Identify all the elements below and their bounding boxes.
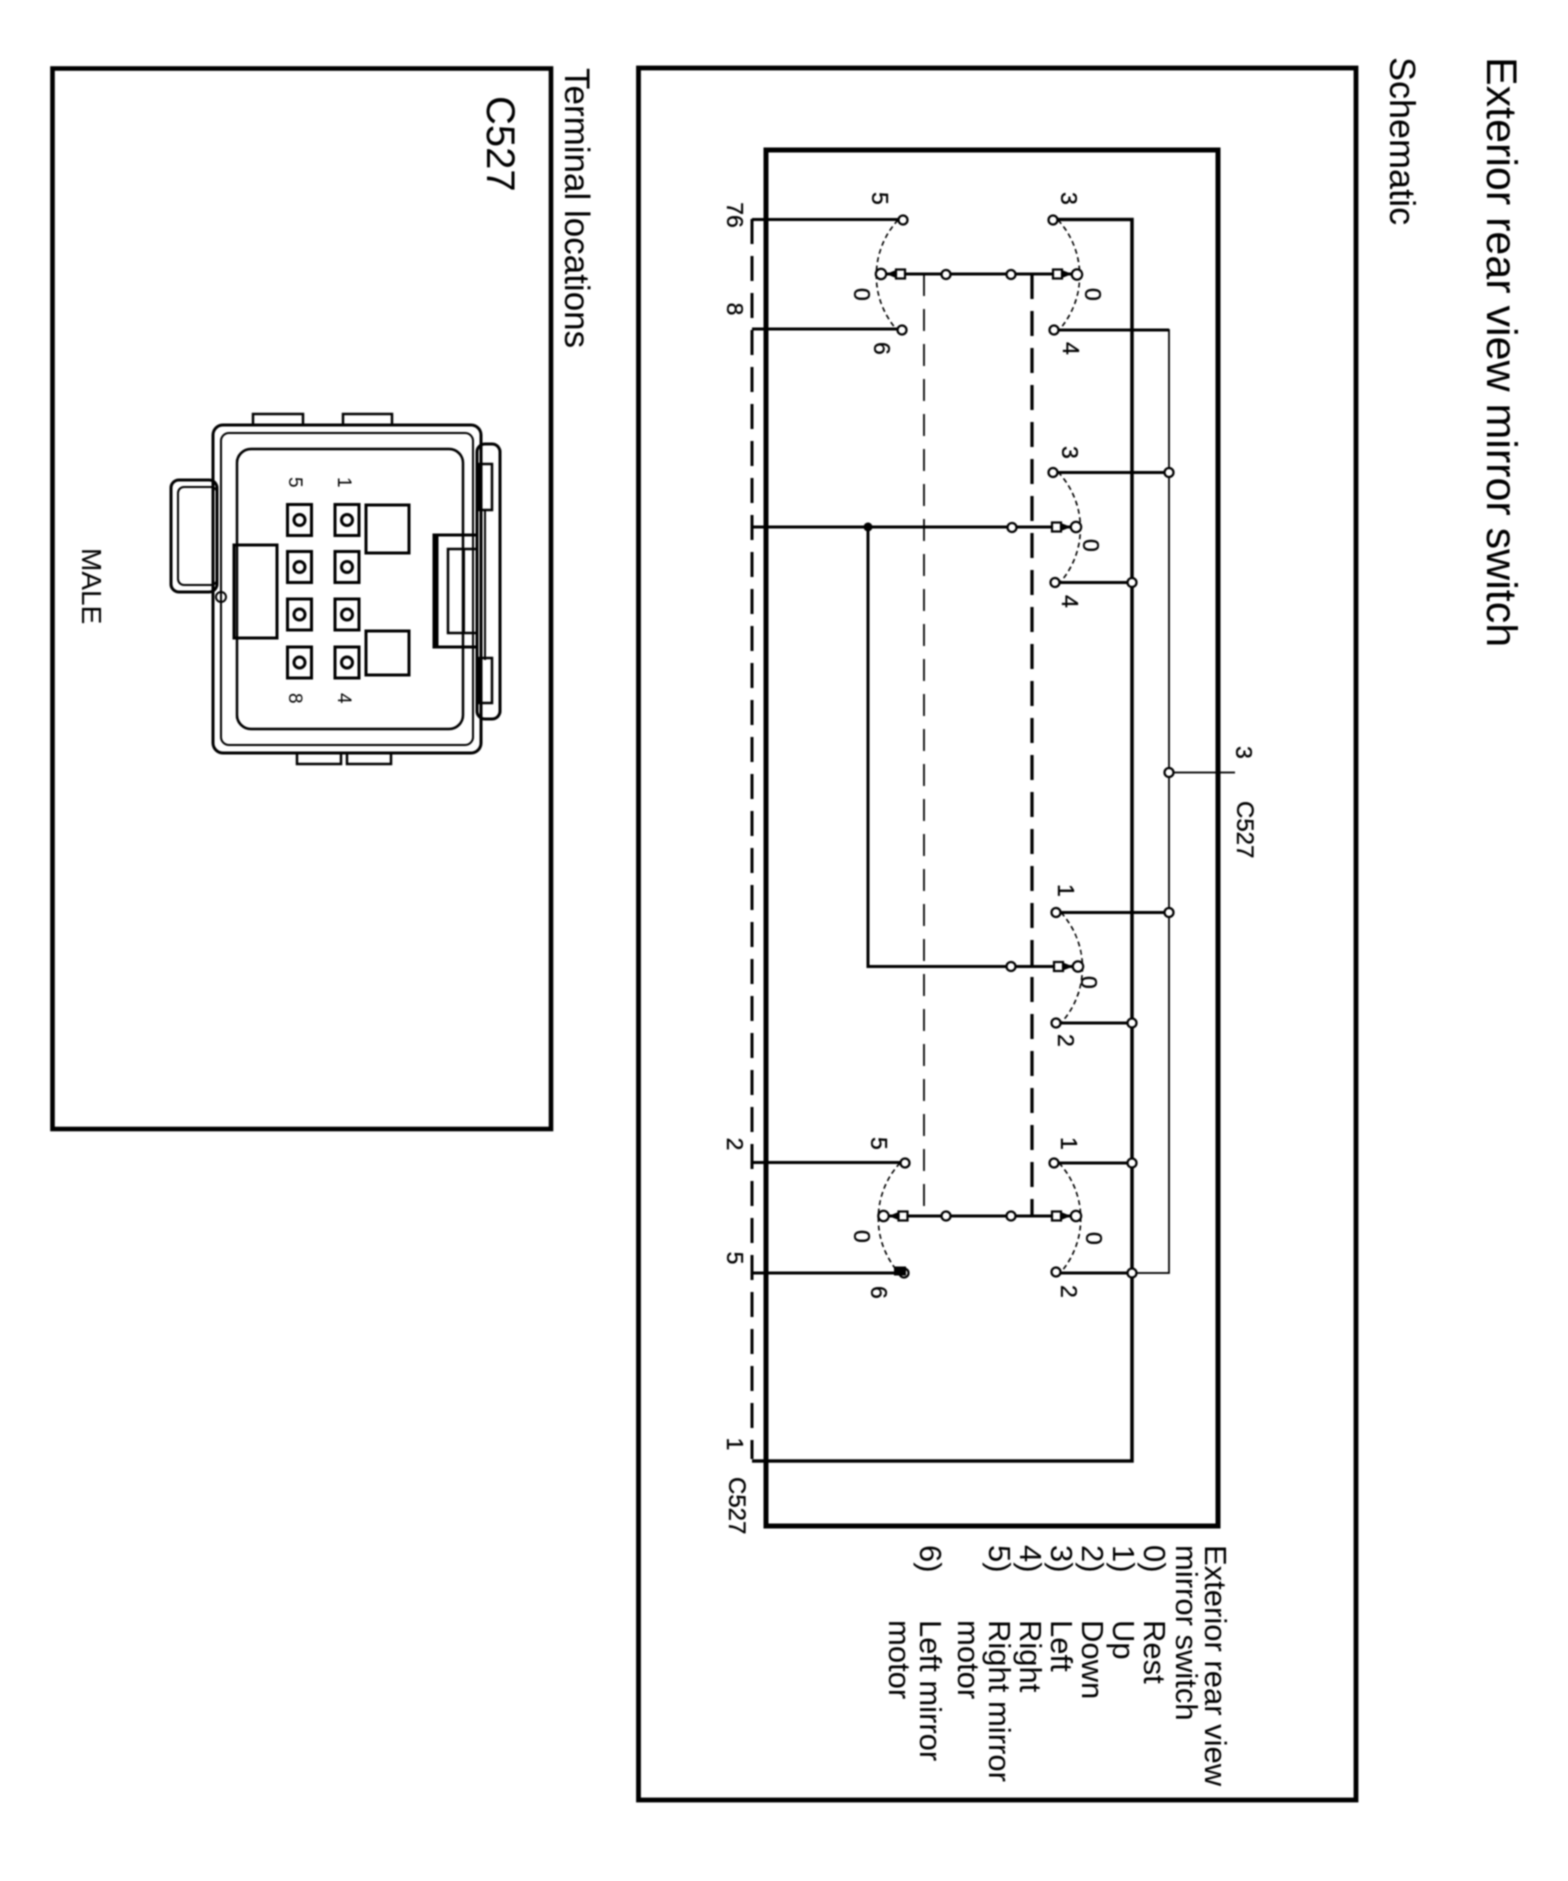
svg-text:mirror switch: mirror switch — [1169, 1545, 1204, 1721]
svg-text:MALE: MALE — [76, 548, 107, 624]
svg-text:4: 4 — [1058, 342, 1084, 355]
svg-text:0: 0 — [849, 1230, 875, 1243]
svg-text:5): 5) — [982, 1545, 1017, 1573]
svg-text:1: 1 — [722, 1438, 748, 1451]
svg-text:motor: motor — [882, 1620, 917, 1699]
svg-text:1: 1 — [1053, 884, 1079, 897]
svg-text:4): 4) — [1013, 1545, 1048, 1573]
svg-text:1): 1) — [1106, 1545, 1141, 1573]
svg-text:2: 2 — [1053, 1034, 1079, 1047]
svg-text:1: 1 — [333, 477, 354, 488]
svg-text:2): 2) — [1075, 1545, 1110, 1573]
svg-text:C527: C527 — [723, 1477, 750, 1534]
svg-text:6: 6 — [869, 342, 895, 355]
svg-text:8: 8 — [722, 303, 748, 316]
svg-text:3: 3 — [1056, 192, 1082, 205]
svg-text:Exterior rear view mirror swit: Exterior rear view mirror switch — [1477, 57, 1525, 647]
svg-text:5: 5 — [866, 1137, 892, 1150]
svg-text:76: 76 — [722, 202, 748, 228]
svg-text:0: 0 — [1081, 1232, 1107, 1245]
svg-text:3): 3) — [1044, 1545, 1079, 1573]
svg-text:4: 4 — [333, 693, 354, 704]
svg-text:0): 0) — [1137, 1545, 1172, 1573]
svg-text:5: 5 — [867, 192, 893, 205]
svg-text:0: 0 — [1080, 288, 1106, 301]
svg-text:0: 0 — [1078, 539, 1104, 552]
svg-text:3: 3 — [1231, 746, 1257, 759]
svg-text:5: 5 — [284, 477, 305, 488]
svg-text:6): 6) — [913, 1545, 948, 1573]
svg-text:Rest: Rest — [1137, 1620, 1172, 1684]
svg-text:Up: Up — [1106, 1620, 1141, 1660]
svg-text:6: 6 — [866, 1286, 892, 1299]
svg-text:5: 5 — [722, 1252, 748, 1265]
svg-text:8: 8 — [284, 693, 305, 704]
svg-text:0: 0 — [849, 288, 875, 301]
svg-text:Left: Left — [1044, 1620, 1079, 1672]
svg-text:0: 0 — [1076, 976, 1102, 989]
svg-text:Down: Down — [1075, 1620, 1110, 1699]
svg-text:Schematic: Schematic — [1382, 57, 1423, 225]
svg-text:Terminal locations: Terminal locations — [557, 68, 596, 348]
svg-text:3: 3 — [1057, 446, 1083, 459]
svg-text:2: 2 — [1056, 1285, 1082, 1298]
svg-text:Right: Right — [1013, 1620, 1048, 1693]
svg-text:4: 4 — [1057, 595, 1083, 608]
svg-text:C527: C527 — [1231, 801, 1258, 858]
svg-text:C527: C527 — [478, 96, 522, 192]
svg-text:2: 2 — [722, 1138, 748, 1151]
svg-text:Right mirror: Right mirror — [982, 1620, 1017, 1782]
svg-text:1: 1 — [1056, 1137, 1082, 1150]
svg-text:motor: motor — [951, 1620, 986, 1699]
svg-text:Left mirror: Left mirror — [913, 1620, 948, 1761]
